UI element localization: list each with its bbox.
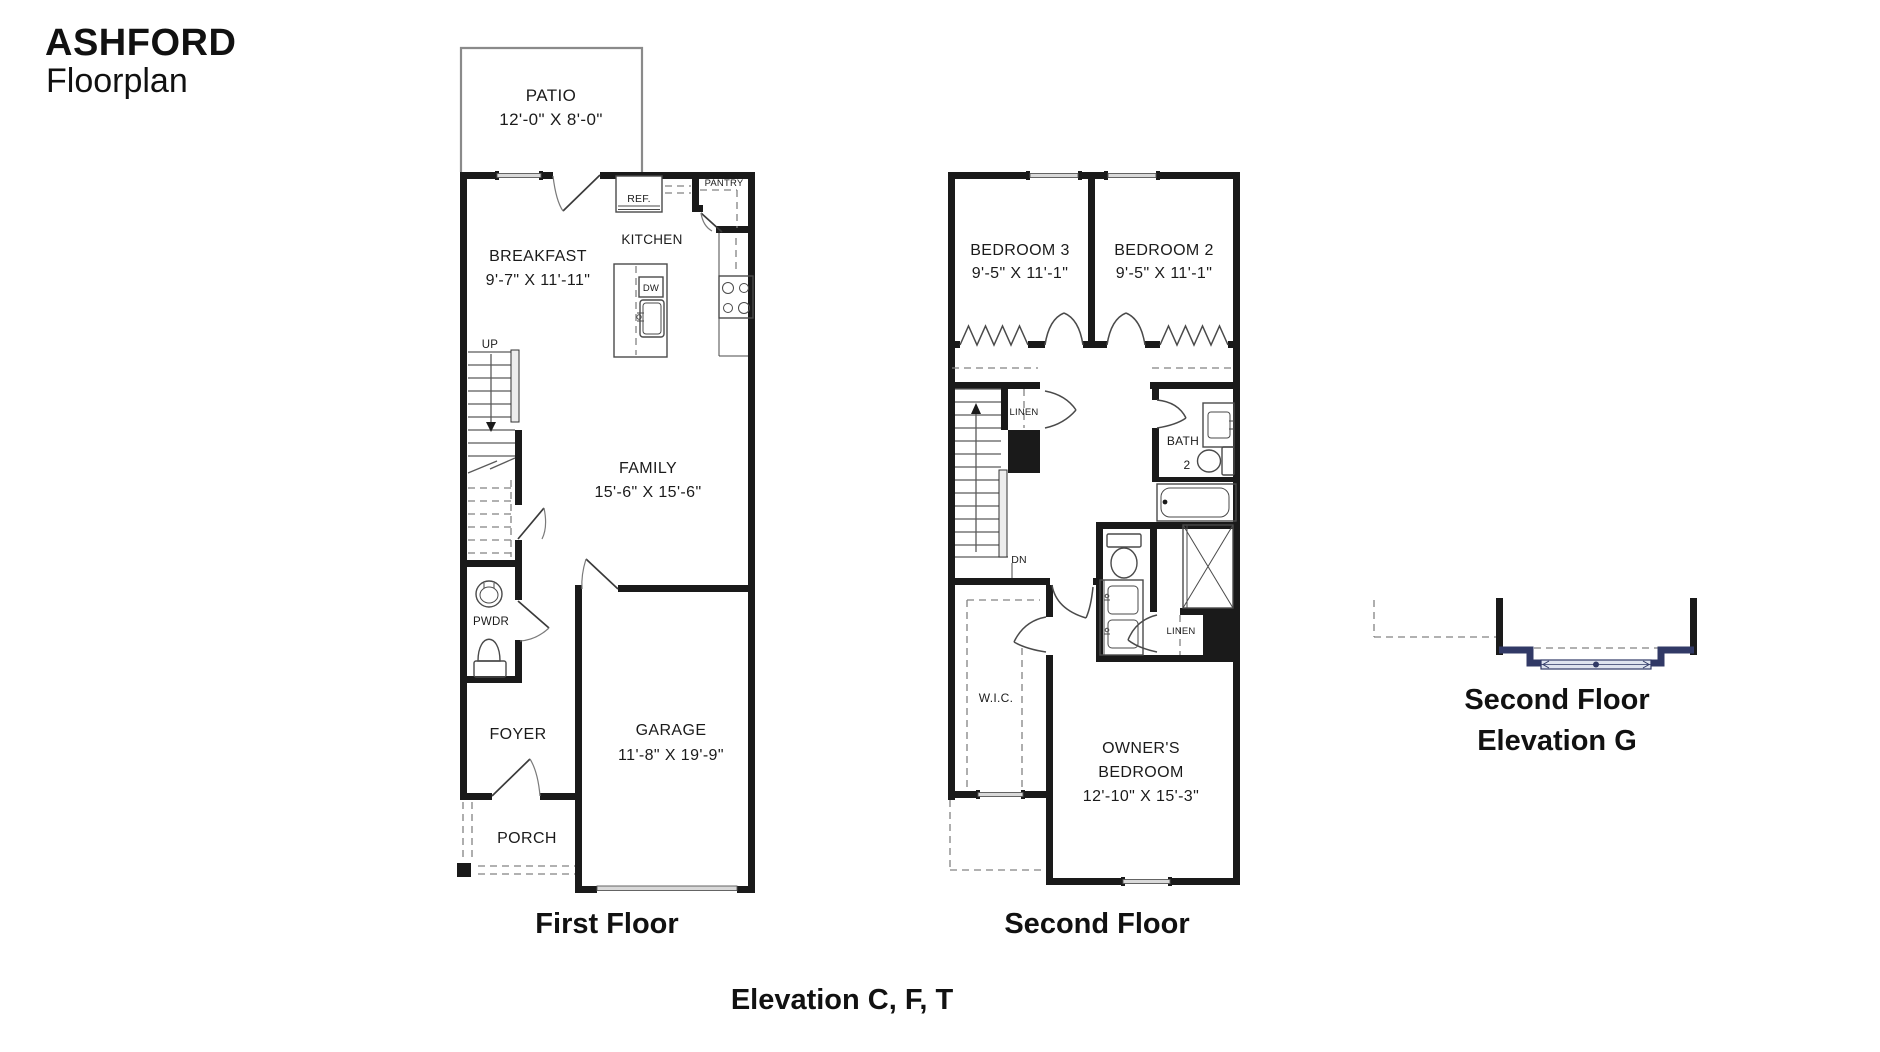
linen2-label: LINEN — [1167, 626, 1196, 637]
bedroom2-label: BEDROOM 2 — [1114, 242, 1214, 259]
bedroom3-door — [1045, 313, 1083, 345]
dn-label: DN — [1011, 554, 1027, 566]
elevation-g-caption-line1: Second Floor — [1397, 684, 1717, 717]
garage-label: GARAGE — [636, 722, 707, 739]
family-door — [518, 508, 546, 539]
owners-label-line2: BEDROOM — [1098, 764, 1183, 781]
bath2-toilet — [1198, 447, 1235, 475]
wic-window — [978, 793, 1023, 797]
kitchen-counter-edges — [719, 233, 748, 356]
patio-label: PATIO — [526, 86, 577, 105]
owners-bedroom-window — [1123, 880, 1170, 884]
linen-label: LINEN — [1010, 407, 1039, 418]
first-floor-plan: REF. DW — [440, 30, 780, 910]
owners-toilet — [1107, 534, 1141, 578]
kitchen-label: KITCHEN — [621, 232, 682, 247]
wic: W.I.C. — [967, 600, 1046, 788]
pantry-door — [701, 213, 722, 232]
elevation-g-detail — [1360, 580, 1720, 680]
owners-vanity — [1100, 580, 1143, 655]
bedroom3-dims: 9'-5" X 11'-1" — [972, 265, 1069, 282]
owners-dims: 12'-10" X 15'-3" — [1083, 788, 1199, 805]
second-floor-plan: DN LINEN — [930, 150, 1250, 910]
pwdr-door — [518, 601, 549, 641]
elevation-g-window — [1541, 660, 1651, 669]
pantry-label: PANTRY — [705, 178, 744, 189]
linen-closet: LINEN — [1010, 389, 1076, 428]
garage-door — [597, 886, 737, 891]
kitchen-island: DW — [614, 264, 667, 357]
pwdr-label: PWDR — [473, 616, 509, 628]
wic-label: W.I.C. — [979, 691, 1013, 705]
ref-label: REF. — [627, 193, 651, 205]
breakfast-window — [497, 174, 541, 178]
bath2: BATH 2 — [1157, 400, 1236, 521]
plan-subtitle: Floorplan — [46, 62, 188, 101]
breakfast-dims: 9'-7" X 11'-11" — [486, 272, 591, 289]
bedroom2-dims: 9'-5" X 11'-1" — [1116, 265, 1213, 282]
up-label: UP — [482, 339, 499, 351]
elevation-g-caption-line2: Elevation G — [1397, 725, 1717, 758]
owners-shower — [1183, 525, 1233, 608]
patio-door — [553, 175, 600, 211]
first-floor-caption: First Floor — [447, 908, 767, 941]
bath2-door — [1157, 400, 1186, 428]
family-label: FAMILY — [619, 460, 677, 477]
bedroom2-window — [1108, 174, 1156, 178]
stairs-up: UP — [468, 339, 519, 557]
owners-hall-door — [1052, 585, 1093, 618]
wic-door — [1014, 617, 1046, 652]
dw-label: DW — [643, 283, 659, 294]
plan-title: ASHFORD — [45, 22, 236, 65]
bedroom2-closet-bifold — [1160, 326, 1228, 345]
roof-below-outline — [950, 800, 1046, 870]
porch-label: PORCH — [497, 830, 557, 847]
garage-entry-door — [582, 559, 618, 589]
bath2-label-line1: BATH — [1167, 434, 1199, 448]
owners-label-line1: OWNER'S — [1102, 740, 1180, 757]
front-door — [492, 759, 540, 796]
bedroom2-door — [1107, 313, 1145, 345]
bath2-label-line2: 2 — [1184, 458, 1191, 472]
bedroom3-closet-bifold — [960, 326, 1028, 345]
bath2-tub — [1157, 484, 1236, 521]
island-sink — [637, 300, 664, 337]
breakfast-label: BREAKFAST — [489, 248, 587, 265]
foyer-label: FOYER — [489, 726, 546, 743]
elevation-g-dashed — [1374, 600, 1658, 648]
floorplan-page: ASHFORD Floorplan REF. — [0, 0, 1880, 1052]
elevation-g-walls — [1496, 598, 1697, 663]
garage-dims: 11'-8" X 19'-9" — [618, 747, 724, 764]
bath2-vanity — [1203, 403, 1234, 447]
bedroom3-window — [1030, 174, 1078, 178]
range-stove — [719, 276, 753, 318]
elevation-footer-caption: Elevation C, F, T — [622, 984, 1062, 1017]
pwdr-sink — [476, 581, 502, 607]
patio-dims: 12'-0" X 8'-0" — [499, 110, 603, 129]
refrigerator: REF. — [616, 176, 662, 212]
bedroom3-label: BEDROOM 3 — [970, 242, 1070, 259]
pwdr-toilet — [474, 639, 506, 677]
second-floor-caption: Second Floor — [937, 908, 1257, 941]
family-dims: 15'-6" X 15'-6" — [594, 484, 701, 501]
